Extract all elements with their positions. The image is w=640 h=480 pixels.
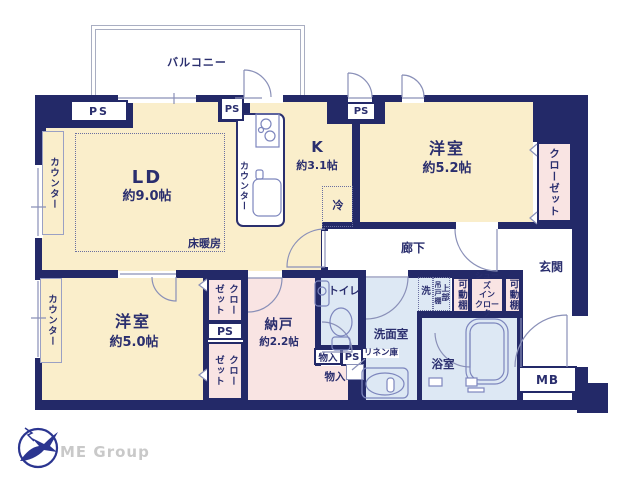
kitchen-size: 約3.1帖 bbox=[296, 160, 338, 171]
toilet-label: トイレ bbox=[328, 286, 360, 297]
floor-heating-label: 床暖房 bbox=[188, 238, 221, 249]
western1-size: 約5.2帖 bbox=[422, 162, 471, 175]
upper-label: 上部 bbox=[441, 284, 449, 302]
corridor-label: 廊下 bbox=[401, 242, 425, 254]
fridge-label: 冷 bbox=[333, 200, 344, 211]
storage-label-lower: 物入 bbox=[325, 372, 346, 383]
ld-size: 約9.0帖 bbox=[122, 190, 171, 203]
balcony-label: バルコニー bbox=[167, 57, 227, 68]
ld-name: LD bbox=[132, 169, 162, 187]
kitchen-name: K bbox=[311, 140, 323, 155]
entrance-label: 玄関 bbox=[539, 261, 563, 273]
western1-name: 洋室 bbox=[429, 141, 465, 157]
bath-label: 浴室 bbox=[432, 359, 455, 371]
storage-room-size: 約2.2帖 bbox=[259, 337, 299, 348]
western2-name: 洋室 bbox=[115, 314, 151, 330]
hanging-shelf-label: 吊戸棚 bbox=[434, 281, 441, 305]
western2-size: 約5.0帖 bbox=[109, 336, 158, 349]
floorplan-linework bbox=[0, 0, 640, 480]
logo-bird-icon bbox=[19, 428, 58, 467]
linen-label: リネン庫 bbox=[363, 349, 399, 358]
storage-room-name: 納戸 bbox=[265, 319, 294, 333]
washroom-label: 洗面室 bbox=[374, 329, 409, 341]
floorplan: カウンター カウンター カウンター クローゼット クローゼット クローゼット 可… bbox=[0, 0, 640, 480]
washer-label: 洗 bbox=[421, 287, 431, 297]
logo-text: ME Group bbox=[60, 445, 150, 460]
